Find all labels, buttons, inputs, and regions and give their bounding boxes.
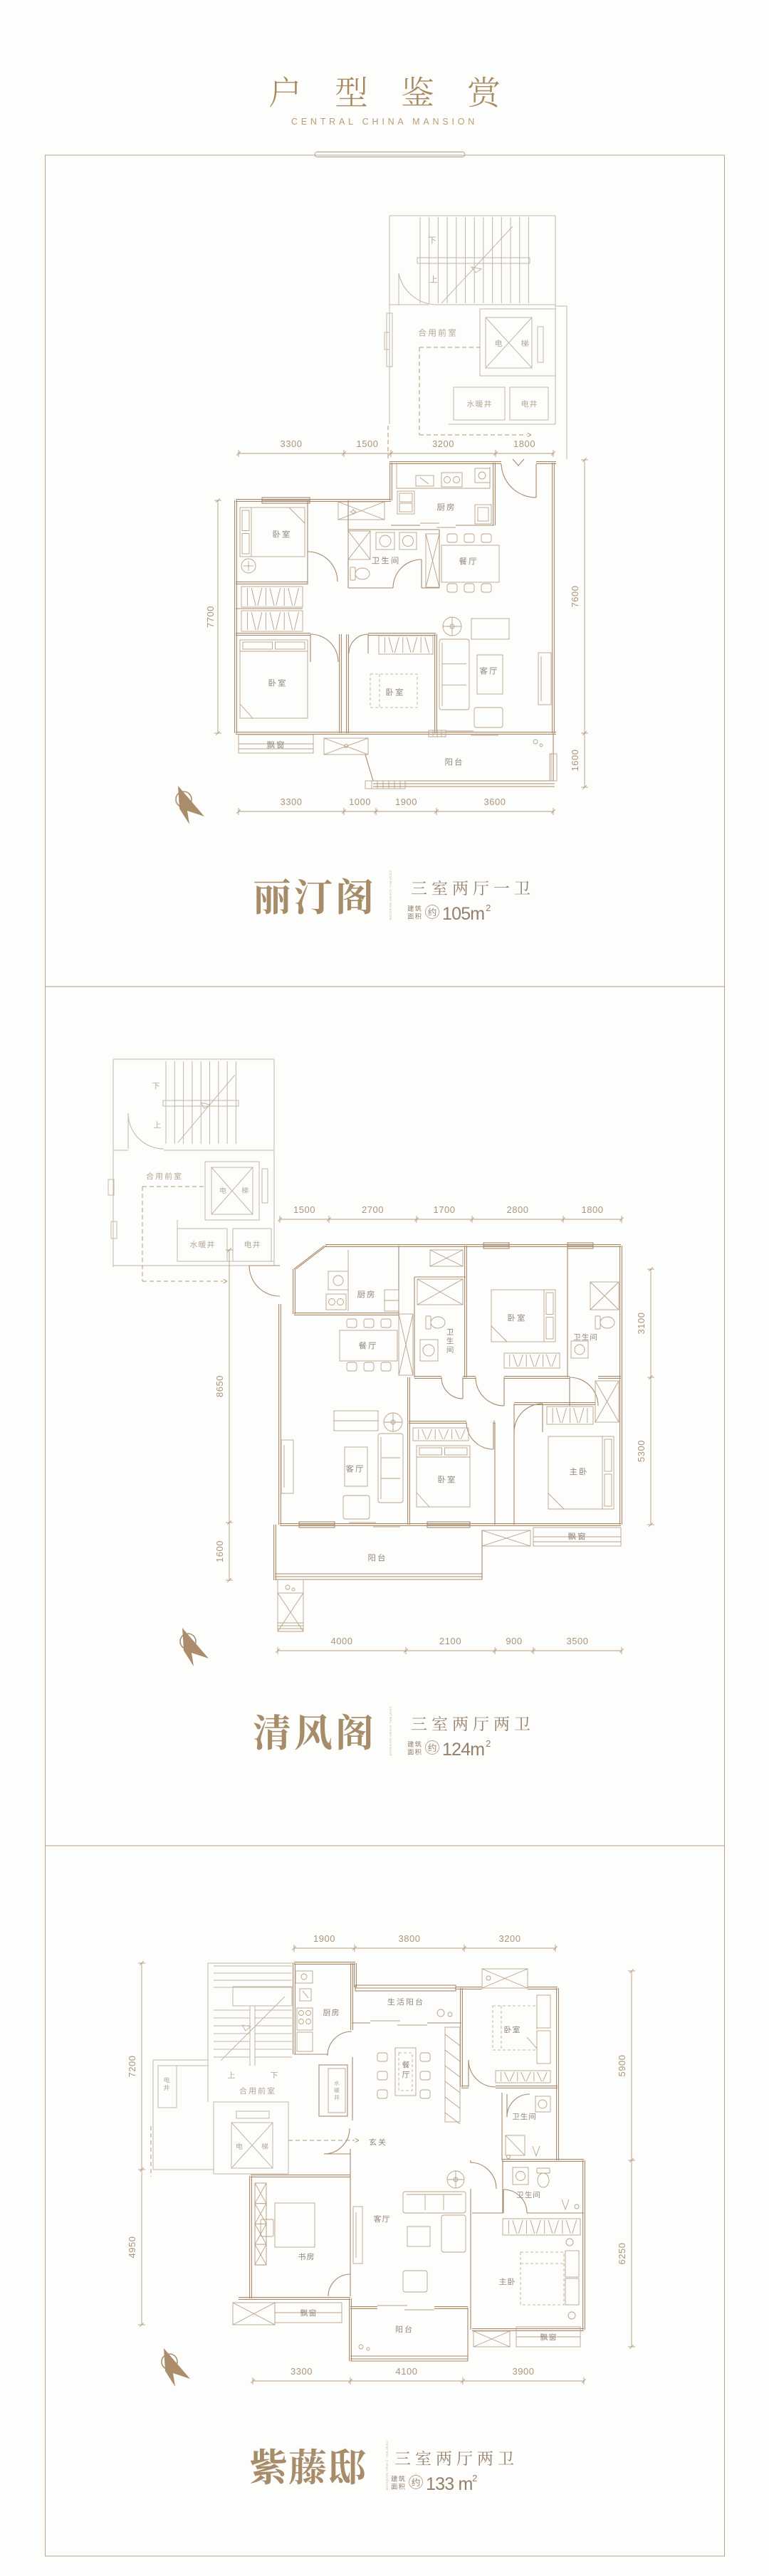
svg-text:1600: 1600	[214, 1540, 225, 1562]
svg-text:CENTRAL CHINA MANSION: CENTRAL CHINA MANSION	[389, 871, 392, 920]
svg-text:3300: 3300	[281, 438, 303, 449]
svg-text:6250: 6250	[617, 2243, 627, 2265]
svg-text:1500: 1500	[293, 1204, 315, 1215]
svg-text:3900: 3900	[513, 2366, 535, 2377]
svg-text:8650: 8650	[214, 1375, 225, 1397]
svg-text:5900: 5900	[617, 2055, 627, 2077]
svg-text:3200: 3200	[432, 438, 454, 449]
svg-text:1700: 1700	[434, 1204, 456, 1215]
svg-text:1800: 1800	[582, 1204, 604, 1215]
svg-text:4100: 4100	[396, 2366, 418, 2377]
svg-text:3600: 3600	[484, 797, 506, 807]
svg-text:2: 2	[486, 1738, 491, 1749]
svg-text:3800: 3800	[399, 1933, 421, 1944]
svg-text:1500: 1500	[357, 438, 379, 449]
svg-text:1900: 1900	[313, 1933, 335, 1944]
svg-text:5300: 5300	[636, 1440, 647, 1462]
svg-text:2800: 2800	[507, 1204, 529, 1215]
svg-text:7600: 7600	[570, 586, 580, 608]
svg-text:1900: 1900	[395, 797, 417, 807]
svg-text:105m: 105m	[442, 904, 484, 924]
svg-text:3100: 3100	[636, 1313, 647, 1335]
svg-text:2: 2	[472, 2473, 477, 2483]
svg-text:CENTRAL CHINA MANSION: CENTRAL CHINA MANSION	[291, 117, 478, 127]
svg-text:7700: 7700	[205, 606, 216, 628]
svg-text:1600: 1600	[570, 750, 580, 772]
svg-text:133 m: 133 m	[426, 2474, 472, 2494]
svg-text:124m: 124m	[442, 1740, 484, 1760]
svg-text:CENTRAL CHINA MANSION: CENTRAL CHINA MANSION	[389, 1706, 392, 1756]
svg-text:2100: 2100	[439, 1636, 461, 1646]
svg-text:1000: 1000	[349, 797, 371, 807]
svg-text:2: 2	[486, 903, 491, 913]
svg-text:4000: 4000	[331, 1636, 353, 1646]
svg-text:3300: 3300	[281, 797, 303, 807]
svg-text:4950: 4950	[127, 2236, 137, 2259]
svg-text:CENTRAL CHINA MANSION: CENTRAL CHINA MANSION	[385, 2441, 389, 2491]
svg-text:1800: 1800	[513, 438, 535, 449]
svg-text:2700: 2700	[362, 1204, 384, 1215]
svg-text:3200: 3200	[499, 1933, 521, 1944]
svg-text:3300: 3300	[291, 2366, 313, 2377]
svg-text:3500: 3500	[567, 1636, 589, 1646]
svg-text:900: 900	[506, 1636, 522, 1646]
svg-text:7200: 7200	[127, 2056, 137, 2078]
